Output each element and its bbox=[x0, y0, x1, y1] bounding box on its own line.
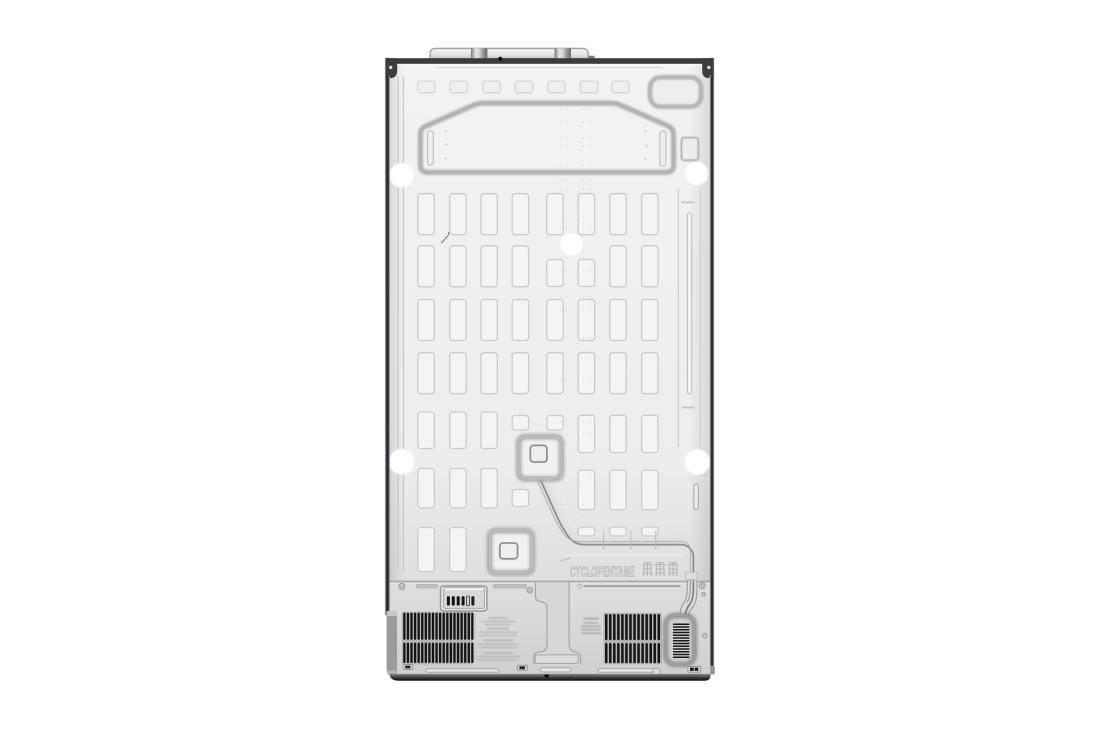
svg-text:CYCLOPENTANE: CYCLOPENTANE bbox=[570, 564, 635, 580]
